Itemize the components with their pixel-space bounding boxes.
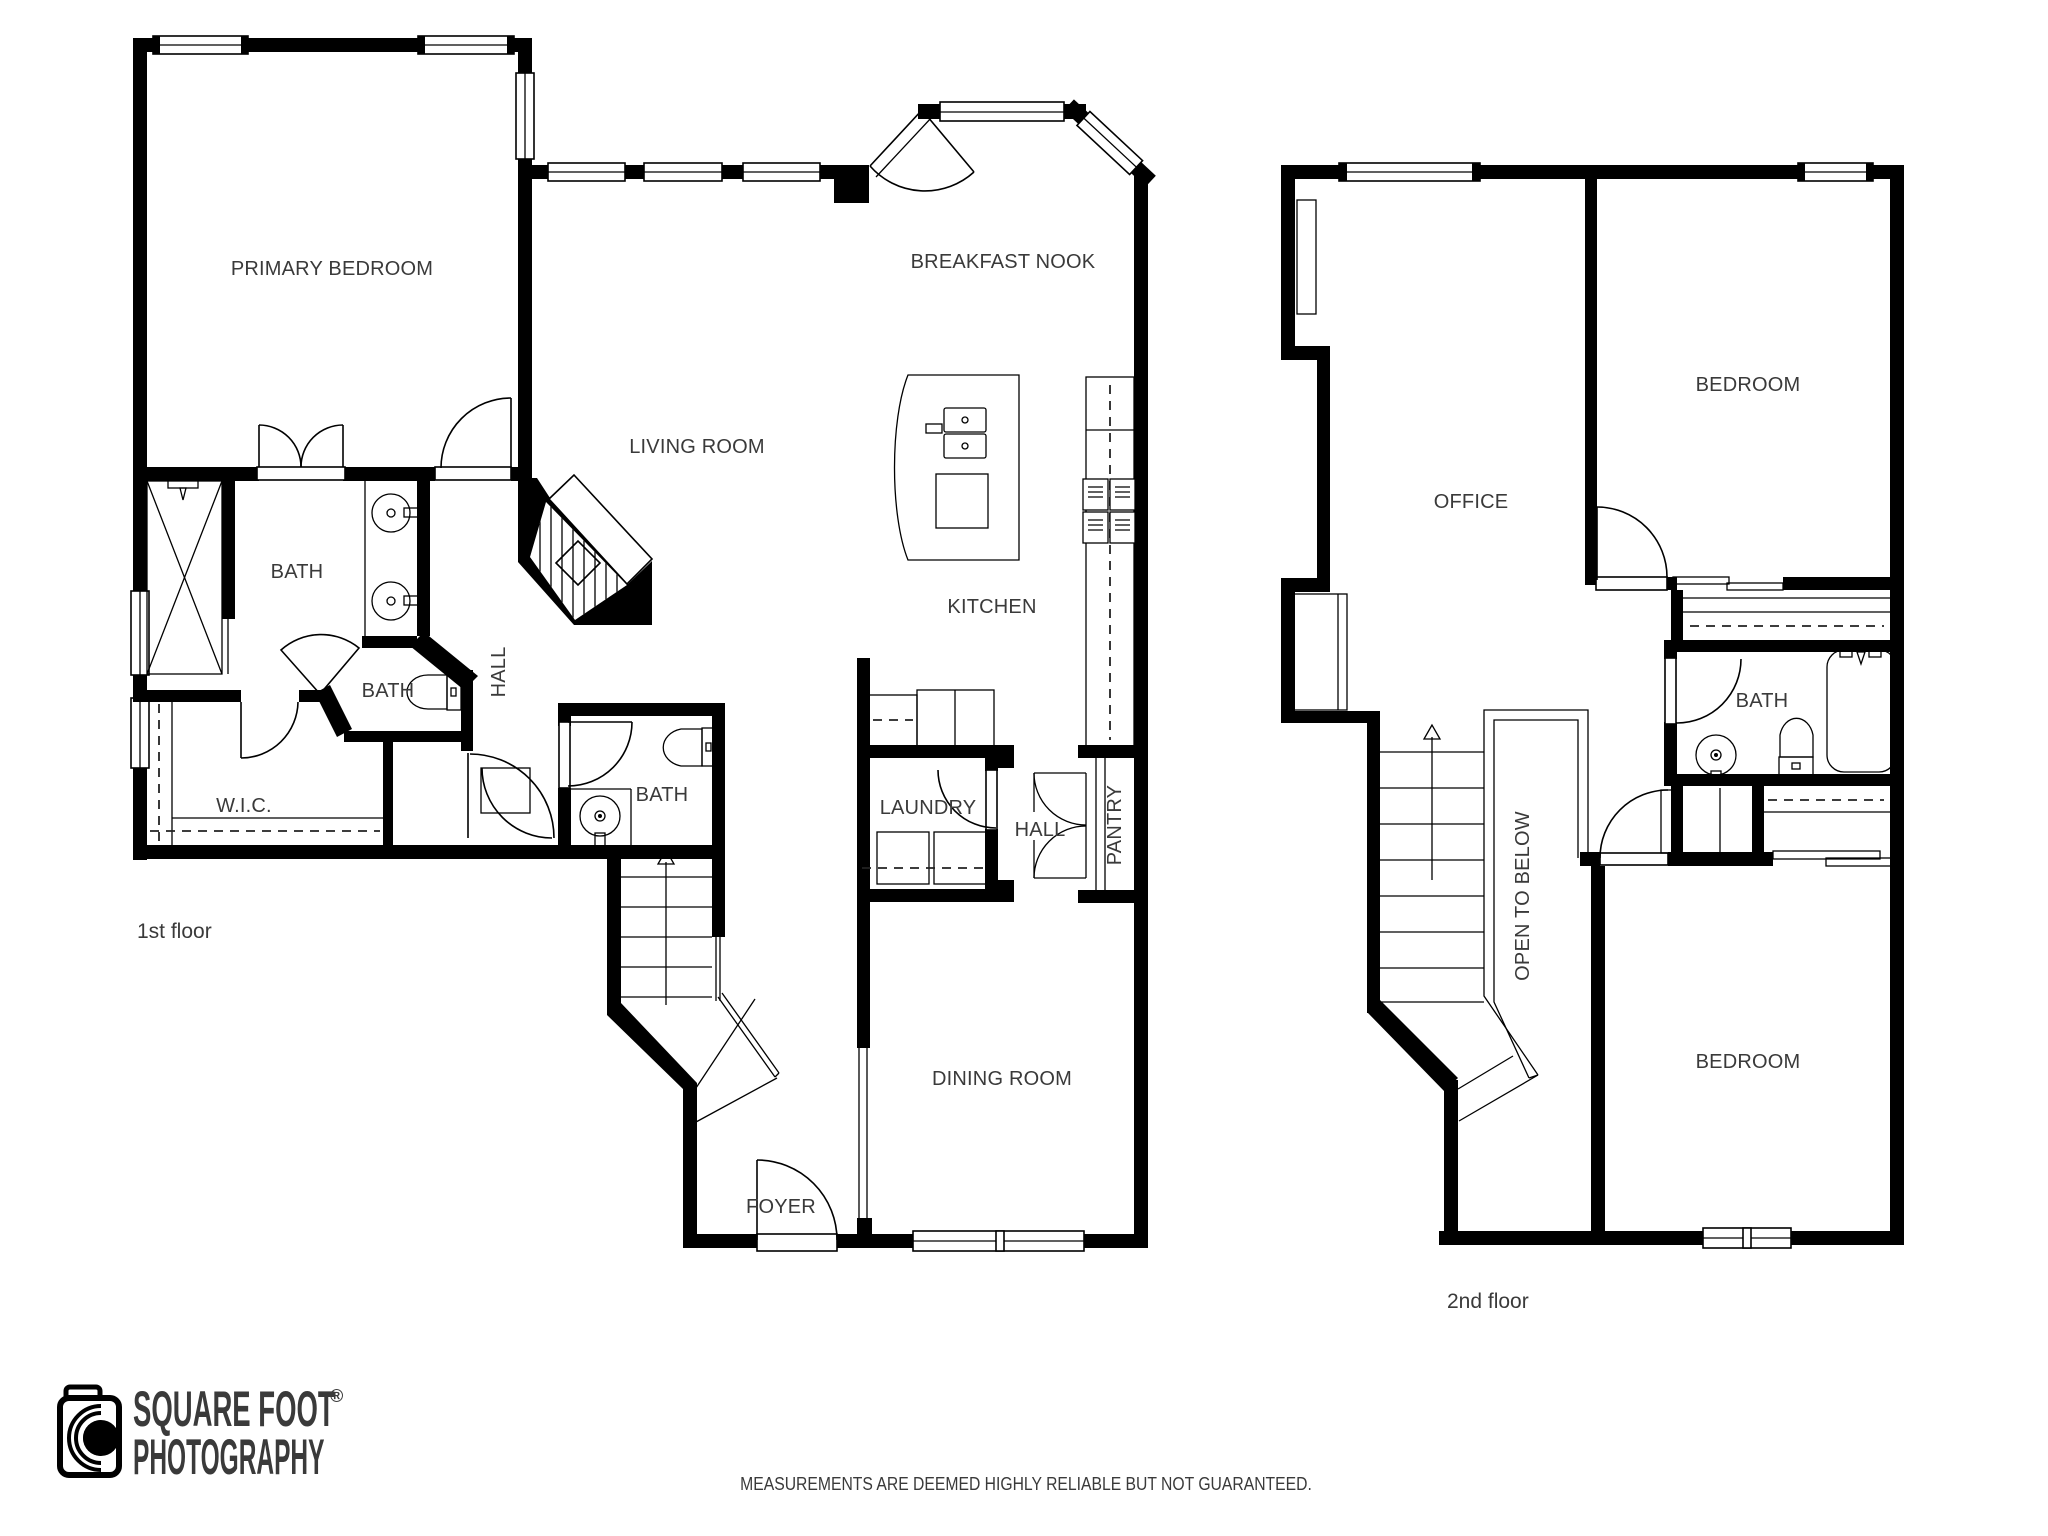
svg-text:BATH: BATH (271, 561, 324, 583)
svg-text:BEDROOM: BEDROOM (1696, 374, 1801, 396)
svg-text:PHOTOGRAPHY: PHOTOGRAPHY (133, 1430, 324, 1486)
svg-text:DINING ROOM: DINING ROOM (932, 1068, 1072, 1090)
svg-text:HALL: HALL (488, 647, 510, 698)
svg-text:PRIMARY BEDROOM: PRIMARY BEDROOM (231, 258, 433, 280)
svg-text:LIVING ROOM: LIVING ROOM (629, 436, 765, 458)
svg-text:BATH: BATH (362, 680, 415, 702)
svg-text:KITCHEN: KITCHEN (947, 596, 1036, 618)
svg-text:BEDROOM: BEDROOM (1696, 1051, 1801, 1073)
svg-text:PANTRY: PANTRY (1104, 785, 1126, 865)
svg-text:BREAKFAST NOOK: BREAKFAST NOOK (911, 251, 1096, 273)
svg-text:1st floor: 1st floor (137, 920, 212, 943)
svg-text:LAUNDRY: LAUNDRY (880, 797, 977, 819)
svg-text:2nd floor: 2nd floor (1447, 1290, 1529, 1313)
svg-text:OFFICE: OFFICE (1434, 491, 1509, 513)
svg-text:OPEN TO BELOW: OPEN TO BELOW (1512, 811, 1534, 981)
svg-text:BATH: BATH (1736, 690, 1789, 712)
svg-text:BATH: BATH (636, 784, 689, 806)
svg-text:FOYER: FOYER (746, 1196, 816, 1218)
svg-text:MEASUREMENTS ARE DEEMED HIGHLY: MEASUREMENTS ARE DEEMED HIGHLY RELIABLE … (740, 1473, 1312, 1495)
svg-text:W.I.C.: W.I.C. (216, 795, 272, 817)
svg-text:®: ® (330, 1386, 343, 1406)
svg-text:HALL: HALL (1015, 819, 1066, 841)
